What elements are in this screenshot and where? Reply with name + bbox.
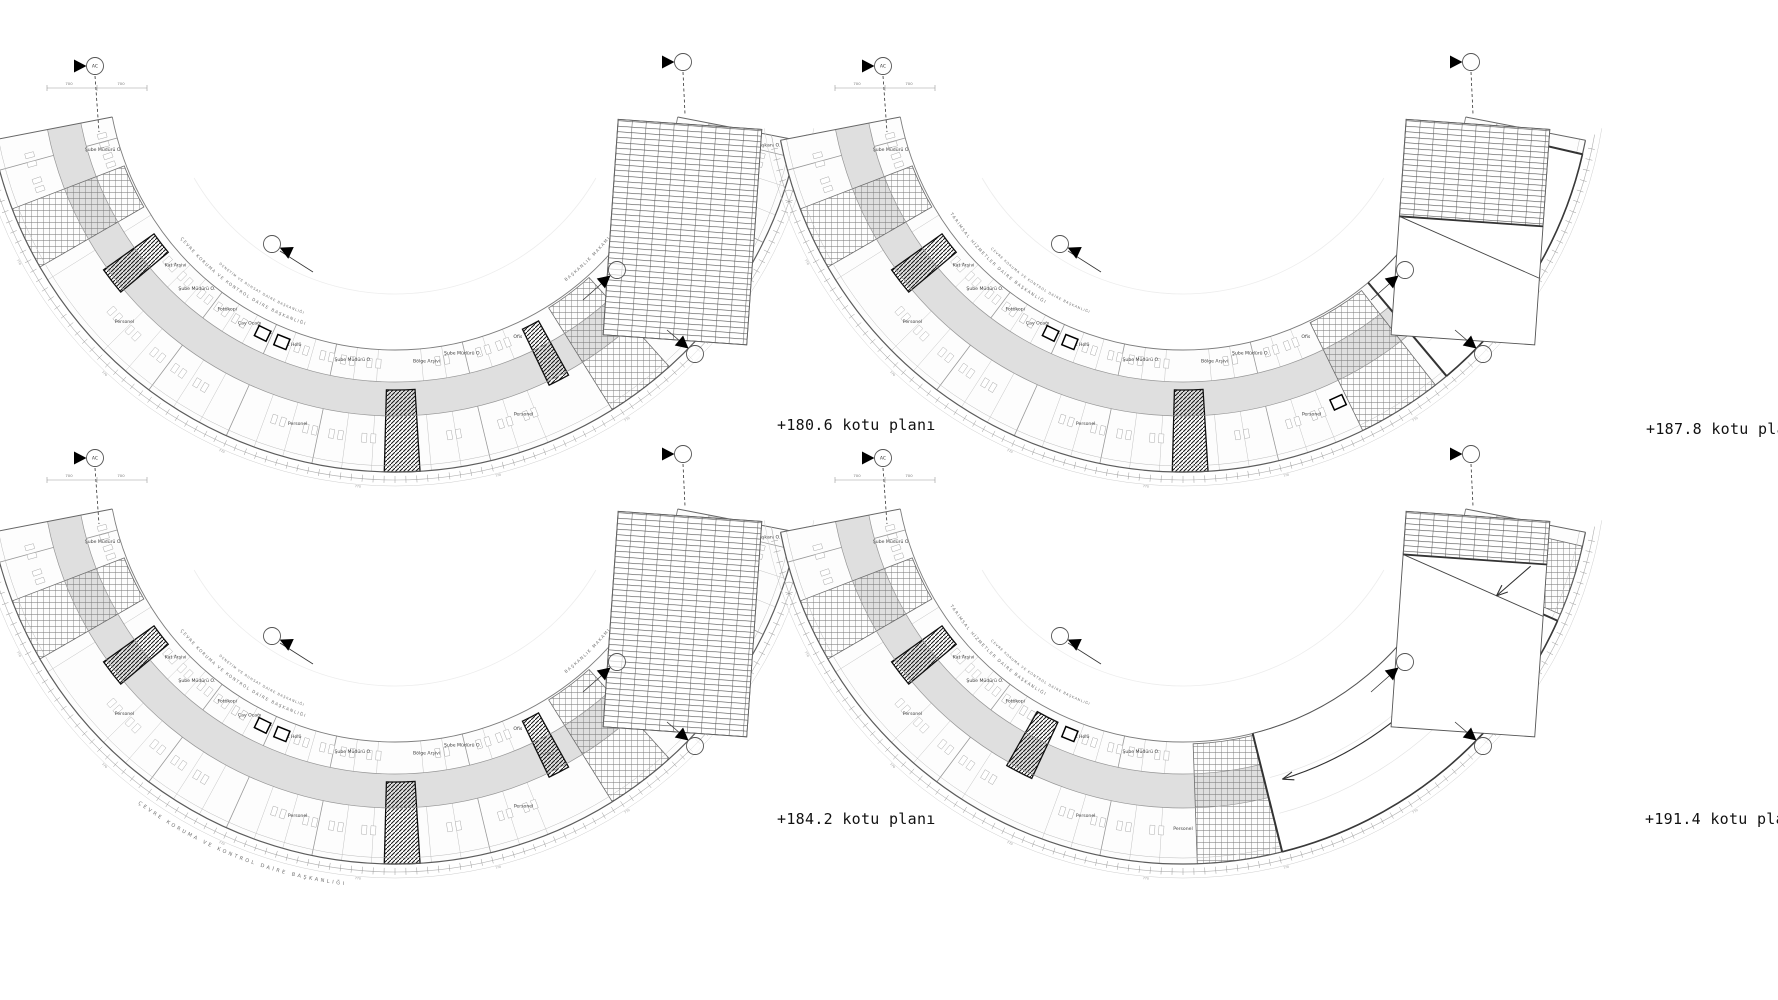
- arc-dim-label: 770: [804, 258, 810, 265]
- arc-dim-label: 770: [1143, 484, 1149, 489]
- svg-text:AC: AC: [92, 64, 98, 70]
- room-label: Personel: [1076, 813, 1096, 819]
- section-marker-icon: [1450, 54, 1480, 71]
- roof-grid-block: [1391, 511, 1550, 737]
- stair-core-block: [384, 389, 420, 472]
- room-label: Kat Arşivi: [953, 263, 975, 269]
- room-label: Personel: [903, 319, 923, 325]
- roof-grid-block: [603, 119, 762, 345]
- room-label: Personel: [1173, 826, 1193, 832]
- section-marker-icon: AC: [862, 58, 892, 75]
- svg-text:700: 700: [65, 81, 73, 86]
- floor-plan-180-6: Şube Müdürü O.Kat ArşiviŞube Müdürü O.Pe…: [0, 54, 814, 489]
- room-label: Şube Müdürü O.: [1123, 357, 1160, 363]
- room-label: Şube Müdürü O.: [873, 539, 910, 545]
- room-label: Personel: [115, 711, 135, 717]
- svg-text:AC: AC: [880, 64, 886, 70]
- arc-dim-label: 770: [218, 448, 225, 454]
- arc-dim-label: 770: [495, 473, 502, 478]
- room-label: Personel: [514, 803, 534, 809]
- section-marker-icon: [264, 628, 294, 651]
- room-label: Kat Arşivi: [165, 263, 187, 269]
- section-marker-icon: AC: [74, 450, 104, 467]
- section-marker-icon: AC: [74, 58, 104, 75]
- arc-dim-label: 770: [804, 650, 810, 657]
- room-label: Şube Müdürü O.: [444, 350, 481, 356]
- arc-dim-label: 770: [623, 416, 630, 423]
- room-label: Fotokopi: [218, 699, 237, 705]
- room-label: Şube Müdürü O.: [85, 539, 122, 545]
- room-label: Ofis: [513, 334, 523, 340]
- room-label: Fotokopi: [1006, 699, 1025, 705]
- arc-dim-label: 770: [355, 484, 361, 489]
- room-label: Personel: [115, 319, 135, 325]
- room-label: Şube Müdürü O.: [873, 147, 910, 153]
- stair-core-block: [384, 781, 420, 864]
- dimension-line: 700700: [835, 81, 935, 91]
- arc-dim-label: 770: [623, 808, 630, 815]
- svg-text:700: 700: [853, 473, 861, 478]
- arc-dim-label: 770: [16, 650, 22, 657]
- arc-dim-label: 770: [101, 370, 108, 377]
- room-label: Şube Müdürü O.: [335, 749, 372, 755]
- arc-dim-label: 770: [1006, 448, 1013, 454]
- arc-dim-label: 770: [1411, 416, 1418, 423]
- svg-text:AC: AC: [92, 456, 98, 462]
- roof-grid-block: [603, 511, 762, 737]
- room-label: Bölge Arşivi: [1201, 358, 1228, 364]
- section-marker-icon: [264, 236, 294, 259]
- room-label: Personel: [903, 711, 923, 717]
- room-label: Bölge Arşivi: [413, 750, 440, 756]
- arc-dim-label: 770: [355, 876, 361, 881]
- room-label: Çay Ocağı: [238, 319, 261, 326]
- stair-core-block: [1172, 389, 1208, 472]
- room-label: Personel: [288, 421, 308, 427]
- arc-dim-label: 770: [1143, 876, 1149, 881]
- dimension-line: 700700: [47, 473, 147, 483]
- room-label: Fotokopi: [1006, 307, 1025, 313]
- section-marker-icon: [662, 446, 692, 463]
- arc-dim-label: 770: [1283, 865, 1290, 870]
- svg-text:700: 700: [117, 473, 125, 478]
- arc-dim-label: 770: [1411, 808, 1418, 815]
- room-label: Personel: [514, 411, 534, 417]
- section-marker-icon: [1450, 446, 1480, 463]
- dimension-line: 700700: [835, 473, 935, 483]
- room-label: Şube Müdürü O.: [178, 678, 215, 684]
- room-label: Çay Ocağı: [1026, 319, 1049, 326]
- room-label: Şube Müdürü O.: [178, 286, 215, 292]
- spot-elevation-label: +178.2: [542, 751, 555, 755]
- plan-caption-184-2: +184.2 kotu planı: [777, 810, 936, 828]
- room-label: Personel: [288, 813, 308, 819]
- room-label: Ofis: [513, 726, 523, 732]
- plan-caption-187-8: +187.8 kotu planı: [1646, 420, 1778, 438]
- room-label: Fotokopi: [218, 307, 237, 313]
- arc-dim-label: 770: [889, 370, 896, 377]
- plans-sheet: Şube Müdürü O.Kat ArşiviŞube Müdürü O.Pe…: [0, 0, 1778, 1000]
- room-label: Şube Müdürü O.: [85, 147, 122, 153]
- room-label: Şube Müdürü O.: [966, 678, 1003, 684]
- room-label: Kat Arşivi: [953, 655, 975, 661]
- plan-caption-180-6: +180.6 kotu planı: [777, 416, 936, 434]
- room-label: Çay Ocağı: [238, 711, 261, 718]
- arc-dim-label: 770: [1006, 840, 1013, 846]
- room-label: Ofis: [1301, 334, 1311, 340]
- arc-dim-label: 770: [1283, 473, 1290, 478]
- svg-text:700: 700: [905, 81, 913, 86]
- svg-text:AC: AC: [880, 456, 886, 462]
- arc-dim-label: 770: [495, 865, 502, 870]
- arc-dim-label: 770: [101, 762, 108, 769]
- svg-text:700: 700: [65, 473, 73, 478]
- svg-text:700: 700: [905, 473, 913, 478]
- arc-dim-label: 770: [889, 762, 896, 769]
- room-label: Şube Müdürü O.: [1232, 350, 1269, 356]
- room-label: Personel: [1302, 411, 1322, 417]
- section-marker-icon: [1052, 628, 1082, 651]
- room-label: Kat Arşivi: [165, 655, 187, 661]
- section-marker-icon: [662, 54, 692, 71]
- plans-canvas: Şube Müdürü O.Kat ArşiviŞube Müdürü O.Pe…: [0, 0, 1778, 1000]
- arc-dim-label: 770: [16, 258, 22, 265]
- room-label: Şube Müdürü O.: [1123, 749, 1160, 755]
- svg-text:700: 700: [117, 81, 125, 86]
- room-label: Şube Müdürü O.: [335, 357, 372, 363]
- floor-plan-184-2: Şube Müdürü O.Kat ArşiviŞube Müdürü O.Pe…: [0, 446, 821, 889]
- section-marker-icon: AC: [862, 450, 892, 467]
- room-label: Şube Müdürü O.: [966, 286, 1003, 292]
- plan-caption-191-4: +191.4 kotu planı: [1645, 810, 1778, 828]
- svg-text:700: 700: [853, 81, 861, 86]
- roof-grid-block: [1391, 119, 1550, 345]
- room-label: Şube Müdürü O.: [444, 742, 481, 748]
- section-marker-icon: [1052, 236, 1082, 259]
- arc-dim-label: 770: [218, 840, 225, 846]
- room-label: Bölge Arşivi: [413, 358, 440, 364]
- dimension-line: 700700: [47, 81, 147, 91]
- room-label: Personel: [1076, 421, 1096, 427]
